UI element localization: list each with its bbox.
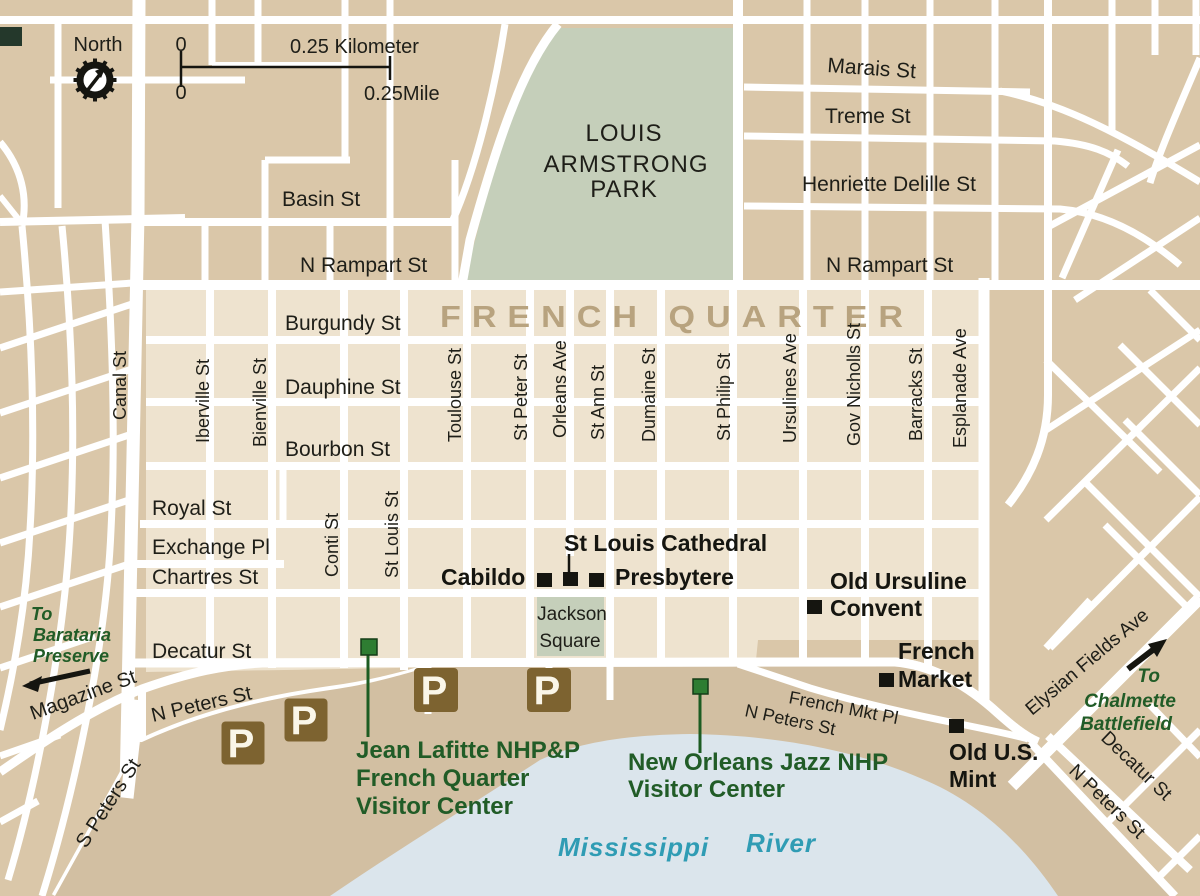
svg-text:Jean Lafitte NHP&P: Jean Lafitte NHP&P (356, 737, 580, 764)
svg-text:Mint: Mint (949, 766, 997, 792)
svg-text:River: River (746, 828, 817, 858)
svg-text:FRENCH QUARTER: FRENCH QUARTER (440, 299, 914, 334)
svg-text:Old Ursuline: Old Ursuline (830, 568, 967, 594)
svg-text:P: P (291, 699, 318, 743)
svg-text:P: P (228, 722, 255, 766)
svg-text:N Rampart St: N Rampart St (826, 254, 953, 277)
svg-text:Battlefield: Battlefield (1080, 714, 1172, 735)
svg-text:LOUIS: LOUIS (585, 120, 662, 147)
svg-text:New Orleans Jazz NHP: New Orleans Jazz NHP (628, 749, 888, 776)
svg-text:St Peter St: St Peter St (511, 354, 531, 441)
svg-text:St Louis Cathedral: St Louis Cathedral (564, 530, 767, 556)
svg-text:French: French (898, 638, 975, 664)
svg-text:Visitor Center: Visitor Center (356, 793, 513, 820)
svg-text:Dauphine St: Dauphine St (285, 376, 401, 399)
svg-text:Cabildo: Cabildo (441, 564, 525, 590)
svg-text:Bourbon St: Bourbon St (285, 438, 390, 461)
svg-text:Bienville St: Bienville St (250, 358, 270, 447)
svg-text:Treme St: Treme St (825, 105, 911, 128)
svg-text:Chartres St: Chartres St (152, 566, 258, 589)
svg-text:Market: Market (898, 666, 972, 692)
svg-text:N Rampart St: N Rampart St (300, 254, 427, 277)
svg-text:Decatur St: Decatur St (152, 640, 251, 663)
svg-text:To: To (31, 604, 52, 624)
svg-text:0: 0 (175, 34, 186, 56)
svg-text:Burgundy St: Burgundy St (285, 312, 401, 335)
svg-text:0: 0 (175, 82, 186, 104)
svg-text:Preserve: Preserve (33, 646, 109, 666)
svg-text:St Philip St: St Philip St (714, 353, 734, 441)
svg-text:To: To (1137, 666, 1160, 687)
svg-text:Toulouse St: Toulouse St (445, 348, 465, 442)
svg-text:Convent: Convent (830, 595, 922, 621)
svg-text:Canal St: Canal St (110, 351, 130, 420)
svg-text:St Louis St: St Louis St (382, 491, 402, 578)
svg-text:Gov Nicholls St: Gov Nicholls St (844, 323, 864, 446)
svg-text:Exchange Pl: Exchange Pl (152, 536, 270, 559)
svg-text:0.25 Kilometer: 0.25 Kilometer (290, 36, 419, 58)
svg-text:Barracks St: Barracks St (906, 348, 926, 441)
svg-text:Dumaine St: Dumaine St (639, 348, 659, 442)
svg-text:Ursulines Ave: Ursulines Ave (780, 333, 800, 443)
svg-text:ARMSTRONG: ARMSTRONG (544, 151, 709, 178)
svg-text:Esplanade Ave: Esplanade Ave (950, 328, 970, 448)
svg-text:PARK: PARK (590, 176, 658, 203)
svg-text:P: P (421, 669, 448, 713)
svg-text:Iberville St: Iberville St (193, 359, 213, 443)
svg-text:Jackson: Jackson (537, 604, 607, 625)
svg-text:0.25Mile: 0.25Mile (364, 83, 440, 105)
svg-text:Visitor Center: Visitor Center (628, 776, 785, 803)
svg-text:Mississippi: Mississippi (558, 832, 709, 862)
svg-text:P: P (534, 669, 561, 713)
svg-text:St Ann St: St Ann St (588, 365, 608, 440)
svg-text:Orleans Ave: Orleans Ave (550, 340, 570, 438)
svg-text:Henriette Delille St: Henriette Delille St (802, 173, 976, 196)
svg-text:Conti St: Conti St (322, 513, 342, 577)
svg-text:Barataria: Barataria (33, 625, 111, 645)
svg-text:Royal St: Royal St (152, 497, 232, 520)
svg-text:Square: Square (539, 631, 600, 652)
svg-text:Chalmette: Chalmette (1084, 691, 1176, 712)
svg-text:Presbytere: Presbytere (615, 564, 734, 590)
svg-text:North: North (74, 34, 123, 56)
svg-text:French Quarter: French Quarter (356, 765, 529, 792)
svg-text:Old U.S.: Old U.S. (949, 739, 1038, 765)
svg-text:Basin St: Basin St (282, 188, 360, 211)
